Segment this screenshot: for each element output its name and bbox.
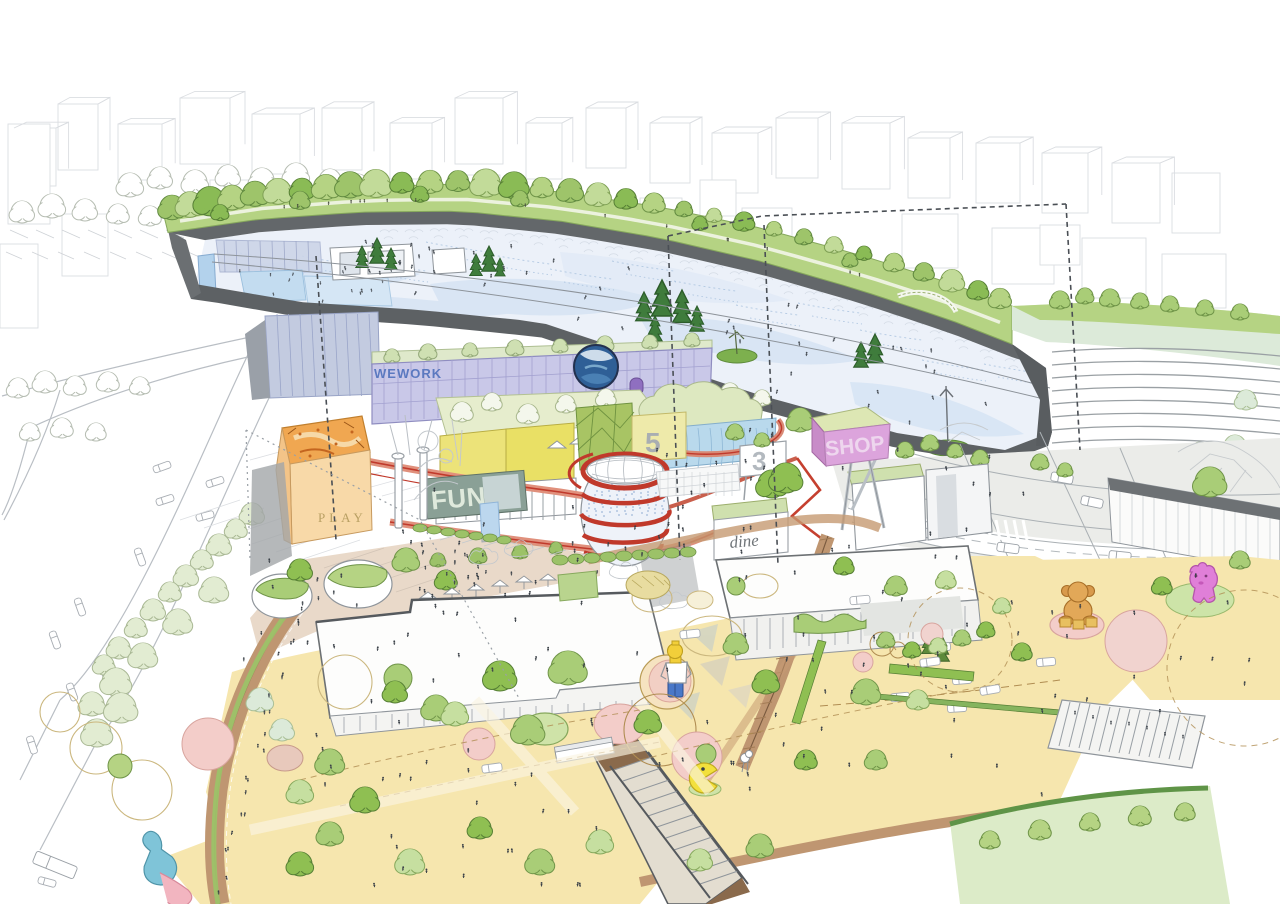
svg-text:WEWORK: WEWORK [374, 366, 442, 381]
svg-text:3: 3 [752, 446, 766, 476]
svg-text:PLAY: PLAY [318, 510, 367, 525]
svg-text:FUN: FUN [430, 481, 487, 516]
svg-text:5: 5 [645, 427, 661, 458]
